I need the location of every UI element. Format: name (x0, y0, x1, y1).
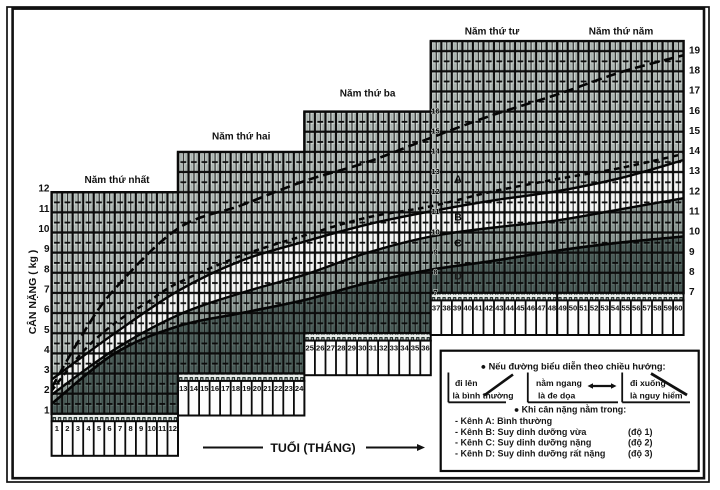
svg-text:31: 31 (369, 344, 378, 353)
svg-text:1: 1 (44, 405, 50, 416)
svg-text:5: 5 (44, 325, 50, 336)
svg-text:24: 24 (295, 384, 304, 393)
svg-text:- Kênh C: Suy dinh dưỡng nặng: - Kênh C: Suy dinh dưỡng nặng (455, 438, 591, 448)
svg-text:14: 14 (431, 147, 440, 156)
svg-text:26: 26 (316, 344, 324, 353)
svg-text:(độ 2): (độ 2) (628, 438, 653, 448)
svg-text:37: 37 (432, 303, 440, 312)
svg-text:52: 52 (590, 303, 598, 312)
svg-text:21: 21 (263, 384, 272, 393)
svg-text:11: 11 (432, 207, 440, 216)
svg-text:50: 50 (569, 303, 577, 312)
svg-text:60: 60 (674, 303, 682, 312)
svg-text:13: 13 (689, 166, 701, 177)
svg-text:9: 9 (433, 248, 437, 257)
svg-text:32: 32 (379, 344, 387, 353)
svg-text:Năm thứ tư: Năm thứ tư (465, 27, 520, 38)
svg-text:57: 57 (642, 303, 650, 312)
svg-text:2: 2 (44, 385, 50, 396)
svg-text:8: 8 (433, 268, 437, 277)
svg-text:28: 28 (337, 344, 345, 353)
svg-text:11: 11 (39, 204, 50, 215)
svg-text:là nguy hiểm: là nguy hiểm (630, 391, 683, 401)
svg-text:4: 4 (44, 345, 50, 356)
svg-text:39: 39 (453, 303, 461, 312)
svg-text:6: 6 (107, 424, 111, 433)
svg-text:3: 3 (44, 365, 50, 376)
svg-text:● Nếu đường biểu diễn theo chi: ● Nếu đường biểu diễn theo chiều hướng: (480, 362, 665, 372)
svg-text:49: 49 (558, 303, 566, 312)
svg-text:10: 10 (431, 227, 439, 236)
svg-text:- Kênh A: Bình thường: - Kênh A: Bình thường (455, 416, 552, 426)
svg-text:12: 12 (38, 184, 50, 195)
svg-text:TUỔI (THÁNG): TUỔI (THÁNG) (270, 440, 355, 455)
svg-text:Năm thứ ba: Năm thứ ba (340, 89, 396, 100)
svg-text:55: 55 (621, 303, 630, 312)
svg-text:25: 25 (305, 344, 314, 353)
svg-text:8: 8 (689, 267, 695, 278)
svg-text:18: 18 (689, 66, 701, 77)
svg-text:48: 48 (548, 303, 556, 312)
svg-text:8: 8 (44, 264, 50, 275)
svg-text:15: 15 (689, 126, 701, 137)
svg-text:12: 12 (168, 424, 176, 433)
svg-text:nằm ngang: nằm ngang (536, 377, 582, 388)
svg-text:14: 14 (190, 384, 199, 393)
svg-text:7: 7 (44, 285, 50, 296)
svg-text:9: 9 (44, 244, 50, 255)
svg-text:53: 53 (600, 303, 608, 312)
svg-text:A: A (454, 174, 462, 186)
svg-text:10: 10 (38, 224, 50, 235)
svg-text:58: 58 (653, 303, 661, 312)
svg-text:12: 12 (431, 187, 439, 196)
svg-text:54: 54 (611, 303, 620, 312)
svg-text:8: 8 (128, 424, 132, 433)
svg-text:10: 10 (689, 227, 701, 238)
svg-text:16: 16 (431, 106, 439, 115)
svg-text:C: C (454, 238, 462, 250)
svg-text:56: 56 (632, 303, 640, 312)
svg-text:Năm thứ nhất: Năm thứ nhất (84, 174, 150, 186)
svg-text:46: 46 (527, 303, 535, 312)
svg-text:40: 40 (463, 303, 471, 312)
svg-text:34: 34 (400, 344, 409, 353)
svg-text:47: 47 (537, 303, 545, 312)
svg-text:Năm thứ năm: Năm thứ năm (589, 27, 654, 38)
svg-text:đi lên: đi lên (455, 378, 477, 388)
svg-text:7: 7 (689, 287, 695, 298)
svg-text:14: 14 (689, 146, 701, 157)
svg-text:(độ 3): (độ 3) (628, 448, 653, 458)
svg-text:● Khi cân nặng nằm trong:: ● Khi cân nặng nằm trong: (514, 404, 626, 415)
svg-text:22: 22 (274, 384, 282, 393)
svg-text:41: 41 (474, 303, 483, 312)
svg-text:Năm thứ hai: Năm thứ hai (212, 132, 271, 143)
svg-text:15: 15 (431, 127, 439, 136)
svg-text:19: 19 (689, 45, 701, 56)
svg-text:36: 36 (421, 344, 429, 353)
svg-text:29: 29 (348, 344, 356, 353)
svg-text:11: 11 (689, 207, 700, 218)
svg-text:2: 2 (65, 424, 69, 433)
svg-text:là đe dọa: là đe dọa (538, 391, 575, 401)
svg-text:19: 19 (242, 384, 250, 393)
svg-text:59: 59 (664, 303, 672, 312)
svg-text:là bình thường: là bình thường (453, 391, 514, 401)
svg-text:13: 13 (431, 167, 439, 176)
svg-text:20: 20 (253, 384, 261, 393)
svg-text:13: 13 (179, 384, 187, 393)
svg-text:23: 23 (284, 384, 292, 393)
svg-text:15: 15 (200, 384, 209, 393)
svg-text:CÂN NẶNG ( kg ): CÂN NẶNG ( kg ) (26, 250, 39, 335)
svg-text:17: 17 (689, 86, 701, 97)
svg-text:35: 35 (411, 344, 420, 353)
svg-text:18: 18 (232, 384, 240, 393)
svg-text:- Kênh D: Suy dinh dưỡng rất n: - Kênh D: Suy dinh dưỡng rất nặng (455, 448, 605, 458)
svg-text:33: 33 (390, 344, 398, 353)
svg-text:38: 38 (442, 303, 450, 312)
svg-text:43: 43 (495, 303, 503, 312)
svg-text:- Kênh B: Suy dinh dưỡng vừa: - Kênh B: Suy dinh dưỡng vừa (455, 427, 587, 437)
svg-text:12: 12 (689, 186, 701, 197)
svg-text:42: 42 (484, 303, 492, 312)
svg-text:44: 44 (506, 303, 515, 312)
svg-text:9: 9 (139, 424, 143, 433)
svg-text:30: 30 (358, 344, 366, 353)
svg-text:17: 17 (221, 384, 229, 393)
svg-text:7: 7 (118, 424, 122, 433)
svg-text:D: D (454, 271, 462, 283)
svg-text:27: 27 (326, 344, 334, 353)
svg-text:6: 6 (44, 305, 50, 316)
svg-text:B: B (454, 212, 462, 224)
svg-text:11: 11 (158, 424, 167, 433)
svg-text:10: 10 (147, 424, 155, 433)
svg-text:45: 45 (516, 303, 525, 312)
svg-text:3: 3 (76, 424, 80, 433)
svg-text:7: 7 (433, 288, 437, 297)
svg-text:51: 51 (579, 303, 588, 312)
svg-text:16: 16 (211, 384, 219, 393)
svg-text:(độ 1): (độ 1) (628, 427, 653, 437)
svg-text:9: 9 (689, 247, 695, 258)
svg-text:16: 16 (689, 106, 701, 117)
